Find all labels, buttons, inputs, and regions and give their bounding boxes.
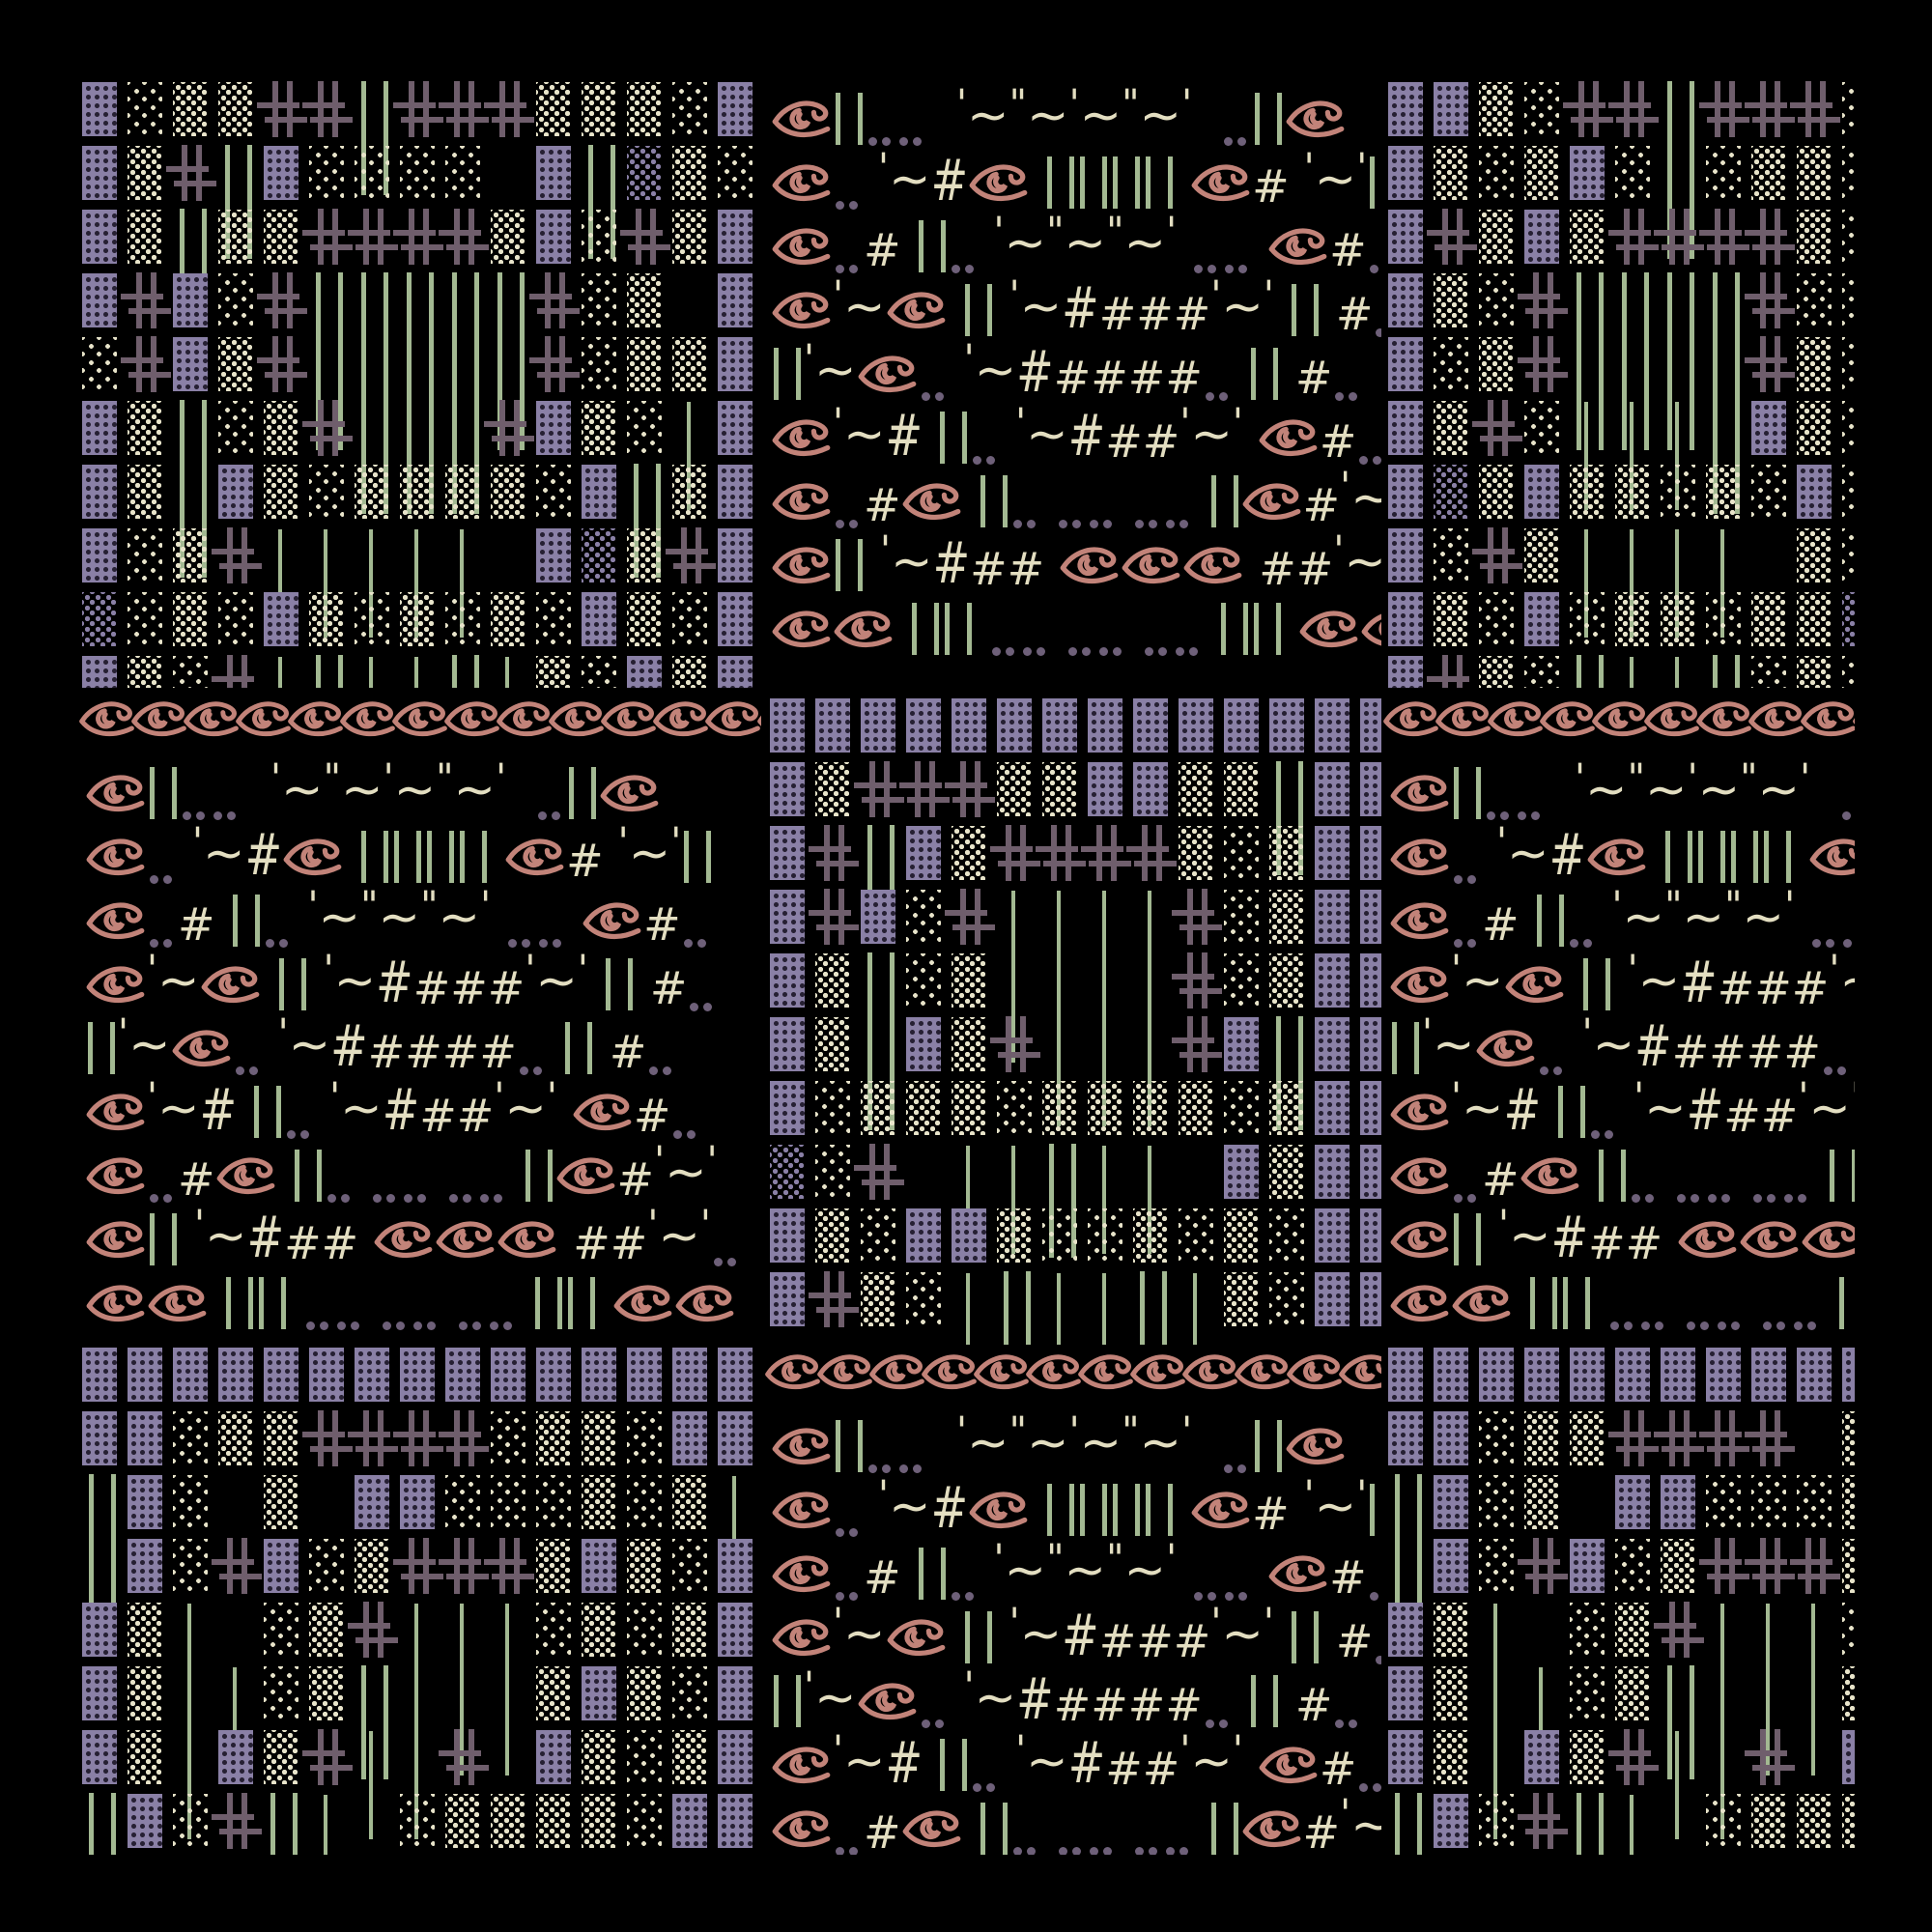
block-cell xyxy=(440,587,486,651)
dot-pair xyxy=(150,874,175,884)
block-cell xyxy=(259,524,304,587)
block-cell xyxy=(947,1140,992,1204)
dense-dot-block xyxy=(1570,1730,1605,1784)
block-cell xyxy=(486,1470,531,1534)
block-cell xyxy=(259,269,304,332)
sparse-dot-block xyxy=(218,273,253,327)
eye-icon xyxy=(572,1092,634,1142)
solid-purple-block xyxy=(264,592,298,646)
sparse-dot-block xyxy=(1706,146,1741,200)
block-cell xyxy=(77,1662,123,1725)
dot-pair xyxy=(459,1321,484,1330)
double-bar-icon xyxy=(1146,1484,1173,1536)
block-cell xyxy=(1565,651,1610,688)
block-cell xyxy=(1792,1725,1837,1789)
dense-dot-block xyxy=(582,82,616,136)
tick-glyph: ' xyxy=(804,1667,814,1706)
block-row xyxy=(1383,460,1855,524)
block-cell xyxy=(1610,1470,1656,1534)
dense-dot-block xyxy=(491,465,526,519)
block-cell xyxy=(1520,1406,1565,1470)
block-cell xyxy=(622,651,668,688)
block-cell xyxy=(1792,332,1837,396)
block-cell xyxy=(1701,651,1747,688)
block-cell xyxy=(304,1534,350,1598)
cross-icon xyxy=(1611,1729,1655,1785)
dot-pair xyxy=(1225,1591,1250,1601)
block-cell xyxy=(350,332,395,396)
tick-glyph: ' xyxy=(1612,887,1623,925)
block-cell xyxy=(168,332,213,396)
block-cell xyxy=(1128,1267,1174,1331)
sparse-dot-block xyxy=(815,1145,850,1199)
block-cell xyxy=(713,1470,758,1534)
block-row xyxy=(765,1076,1381,1140)
block-cell xyxy=(350,269,395,332)
dot-pair xyxy=(183,810,208,820)
block-cell xyxy=(1429,1789,1474,1853)
sparse-dot-block xyxy=(445,1475,480,1529)
cross-icon xyxy=(305,81,349,137)
cross-icon xyxy=(396,1410,440,1466)
solid-purple-block xyxy=(627,656,662,688)
dense-dot-block xyxy=(445,465,480,519)
block-cell xyxy=(440,651,486,688)
eye-icon xyxy=(1475,1028,1537,1078)
double-bar-icon xyxy=(1395,1793,1422,1855)
block-cell xyxy=(1429,1534,1474,1598)
block-cell xyxy=(947,821,992,885)
eye-icon xyxy=(886,290,948,340)
eye-row: '~'~###### xyxy=(79,1014,761,1078)
sparse-dot-block xyxy=(1842,82,1855,136)
tick-glyph: ' xyxy=(804,340,814,379)
tick-glyph: ' xyxy=(1179,1731,1190,1770)
eye-icon xyxy=(1853,697,1855,744)
dot-pair xyxy=(327,1193,353,1203)
hash-glyph: # xyxy=(1709,1030,1747,1074)
cross-icon xyxy=(1430,655,1473,688)
block-cell xyxy=(1565,1725,1610,1789)
sparse-dot-block xyxy=(1524,656,1559,688)
block-cell xyxy=(1383,1789,1429,1853)
block-cell xyxy=(1792,269,1837,332)
block-cell xyxy=(622,205,668,269)
solid-purple-block xyxy=(355,1348,389,1402)
single-bar-icon xyxy=(966,1273,970,1345)
block-cell xyxy=(1219,821,1264,885)
hash-glyph: # xyxy=(1761,1094,1799,1138)
block-cell xyxy=(622,524,668,587)
block-row xyxy=(77,1343,763,1406)
dense-dot-block xyxy=(1434,146,1468,200)
eye-row: '~'~####'~'# xyxy=(765,1604,1381,1667)
block-cell xyxy=(622,141,668,205)
cross-icon xyxy=(441,1729,485,1785)
eye-icon xyxy=(901,1808,963,1855)
dot-pair xyxy=(836,264,861,273)
sparse-dot-block xyxy=(1751,656,1786,688)
sparse-dot-block xyxy=(1797,1475,1832,1529)
block-cell xyxy=(1037,1012,1083,1076)
dot-pair xyxy=(1454,938,1479,948)
block-cell xyxy=(713,524,758,587)
tilde-glyph: ~ xyxy=(1350,473,1381,524)
block-cell xyxy=(713,651,758,688)
tilde-glyph: ~ xyxy=(843,410,886,460)
eye-icon xyxy=(1488,697,1540,744)
block-cell xyxy=(1565,205,1610,269)
spacer xyxy=(1484,1265,1498,1269)
sparse-dot-block xyxy=(400,1794,435,1848)
double-tick-glyph: " xyxy=(1628,759,1645,798)
block-cell xyxy=(1429,1406,1474,1470)
tick-glyph: ' xyxy=(496,759,506,798)
solid-purple-block xyxy=(1360,826,1381,880)
tilde-glyph: ~ xyxy=(1839,956,1855,1007)
eye-icon xyxy=(1389,1155,1451,1206)
eye-icon xyxy=(215,1155,277,1206)
solid-purple-block xyxy=(718,210,753,264)
hash-glyph: # xyxy=(1054,355,1092,400)
block-cell xyxy=(1174,1140,1219,1204)
block-cell xyxy=(1219,949,1264,1012)
block-cell xyxy=(713,460,758,524)
spacer xyxy=(441,1329,456,1333)
dot-pair xyxy=(1824,1065,1849,1075)
purple-dot-block xyxy=(770,1145,805,1199)
block-cell xyxy=(1747,332,1792,396)
dot-pair xyxy=(1090,1846,1115,1855)
block-cell xyxy=(77,1343,123,1406)
hash-glyph: # xyxy=(1165,355,1203,400)
eye-icon xyxy=(504,837,566,887)
block-cell xyxy=(304,1343,350,1406)
block-cell xyxy=(1520,396,1565,460)
hash-glyph: # xyxy=(1336,292,1374,336)
tilde-glyph: ~ xyxy=(1190,1737,1233,1787)
block-cell xyxy=(765,1012,810,1076)
tilde-glyph: ~ xyxy=(1027,1418,1069,1468)
eye-border-row xyxy=(765,1349,1381,1399)
block-cell xyxy=(531,524,577,587)
sparse-dot-block xyxy=(1570,1603,1605,1657)
block-cell xyxy=(531,1343,577,1406)
block-cell xyxy=(947,694,992,757)
block-cell xyxy=(1701,1534,1747,1598)
cross-icon xyxy=(487,400,530,456)
block-cell xyxy=(486,1406,531,1470)
block-cell xyxy=(1837,332,1855,396)
block-cell xyxy=(77,332,123,396)
eye-row: '~##'~' xyxy=(765,149,1381,213)
block-cell xyxy=(856,1140,901,1204)
tilde-glyph: ~ xyxy=(205,1211,247,1262)
tick-glyph: ' xyxy=(1304,1476,1315,1515)
block-cell xyxy=(259,460,304,524)
block-cell xyxy=(1610,77,1656,141)
eye-icon xyxy=(771,99,833,149)
block-cell xyxy=(1264,1204,1310,1267)
block-cell xyxy=(901,1140,947,1204)
tick-glyph: ' xyxy=(1210,1604,1221,1642)
block-cell xyxy=(1174,757,1219,821)
block-cell xyxy=(1429,1725,1474,1789)
sparse-dot-block xyxy=(672,82,707,136)
block-cell xyxy=(1792,1662,1837,1725)
spacer xyxy=(1795,947,1809,951)
block-cell xyxy=(1429,77,1474,141)
solid-purple-block xyxy=(1524,1348,1559,1402)
block-cell xyxy=(1610,460,1656,524)
solid-purple-block xyxy=(1842,1730,1855,1784)
dense-dot-block xyxy=(1842,1539,1855,1593)
spacer xyxy=(598,1329,612,1333)
block-cell xyxy=(577,587,622,651)
eye-row: '~'~###### xyxy=(1383,1014,1855,1078)
solid-purple-block xyxy=(1360,1145,1381,1199)
double-bar-icon xyxy=(1454,767,1481,819)
block-cell xyxy=(486,460,531,524)
block-cell xyxy=(577,1470,622,1534)
block-cell xyxy=(1383,587,1429,651)
block-cell xyxy=(1474,1725,1520,1789)
dense-dot-block xyxy=(1434,592,1468,646)
dense-dot-block xyxy=(1706,465,1741,519)
block-cell xyxy=(992,885,1037,949)
dot-pair xyxy=(1059,519,1084,528)
block-cell xyxy=(1520,77,1565,141)
hash-glyph: # xyxy=(634,1094,671,1138)
block-cell xyxy=(1174,1204,1219,1267)
dense-dot-block xyxy=(1797,401,1832,455)
solid-purple-block xyxy=(1797,1348,1832,1402)
block-cell xyxy=(622,1725,668,1789)
double-bar-icon xyxy=(1255,93,1282,145)
cross-icon xyxy=(441,81,485,137)
double-tick-glyph: " xyxy=(436,759,453,798)
block-cell xyxy=(1474,332,1520,396)
tilde-glyph: ~ xyxy=(157,1084,200,1134)
eye-icon xyxy=(435,1219,497,1269)
spacer xyxy=(355,1202,370,1206)
tick-glyph: ' xyxy=(647,1206,658,1244)
block-row xyxy=(77,587,763,651)
solid-purple-block xyxy=(536,1348,571,1402)
block-cell xyxy=(1174,1267,1219,1331)
block-cell xyxy=(1355,885,1381,949)
block-tile xyxy=(1383,77,1855,688)
spacer xyxy=(1822,1329,1836,1333)
sparse-dot-block xyxy=(672,592,707,646)
spacer xyxy=(558,1265,573,1269)
solid-purple-block xyxy=(770,1017,805,1071)
block-cell xyxy=(304,1598,350,1662)
dense-dot-block xyxy=(309,592,344,646)
block-cell xyxy=(77,587,123,651)
block-cell xyxy=(947,757,992,821)
solid-purple-block xyxy=(906,1017,941,1071)
hash-glyph: # xyxy=(1252,164,1290,209)
double-bar-icon xyxy=(1254,603,1281,655)
tilde-glyph: ~ xyxy=(289,1020,331,1070)
block-cell xyxy=(213,141,259,205)
hash-glyph: # xyxy=(1136,1619,1174,1663)
block-cell xyxy=(350,587,395,651)
block-cell xyxy=(1383,205,1429,269)
eye-icon xyxy=(85,900,147,951)
spacer xyxy=(1281,1727,1295,1731)
block-cell xyxy=(440,1343,486,1406)
dense-dot-block xyxy=(309,1666,344,1720)
block-cell xyxy=(1520,1470,1565,1534)
solid-purple-block xyxy=(1388,146,1423,200)
block-cell xyxy=(1520,524,1565,587)
eye-icon xyxy=(1540,697,1592,744)
hash-glyph: # xyxy=(488,966,526,1010)
block-cell xyxy=(1565,460,1610,524)
block-cell xyxy=(77,1725,123,1789)
block-cell xyxy=(1429,269,1474,332)
block-cell xyxy=(486,1789,531,1853)
sparse-dot-block xyxy=(536,1603,571,1657)
block-cell xyxy=(1792,524,1837,587)
tick-glyph: ' xyxy=(147,951,157,989)
tilde-glyph: ~ xyxy=(504,1084,547,1134)
spacer xyxy=(1177,272,1191,276)
eye-icon xyxy=(373,1219,435,1269)
block-cell xyxy=(1174,949,1219,1012)
block-cell xyxy=(1520,1789,1565,1853)
block-row xyxy=(77,1406,763,1470)
eye-icon xyxy=(1130,1350,1182,1397)
eye-icon xyxy=(1677,1219,1739,1269)
eye-icon xyxy=(757,697,761,744)
sparse-dot-block xyxy=(128,592,162,646)
spacer xyxy=(1194,527,1208,531)
block-cell xyxy=(304,332,350,396)
block-cell xyxy=(1837,1534,1855,1598)
cross-icon xyxy=(1520,336,1564,392)
block-cell xyxy=(1429,460,1474,524)
cross-icon xyxy=(993,1016,1037,1072)
solid-purple-block xyxy=(1315,953,1350,1008)
block-tile xyxy=(1383,1343,1855,1855)
block-cell xyxy=(810,949,856,1012)
block-cell xyxy=(1565,396,1610,460)
block-cell xyxy=(259,1725,304,1789)
block-cell xyxy=(213,460,259,524)
single-bar-icon xyxy=(278,657,282,688)
solid-purple-block xyxy=(952,1208,986,1263)
block-cell xyxy=(1383,332,1429,396)
eye-icon xyxy=(653,697,705,744)
block-cell xyxy=(1792,651,1837,688)
tilde-glyph: ~ xyxy=(535,956,578,1007)
spacer xyxy=(950,1727,964,1731)
block-cell xyxy=(1474,651,1520,688)
block-cell xyxy=(486,1534,531,1598)
block-cell xyxy=(531,587,577,651)
block-cell xyxy=(440,1725,486,1789)
tall-hash-glyph: # xyxy=(1504,1081,1542,1138)
solid-purple-block xyxy=(1388,1730,1423,1784)
block-cell xyxy=(1701,205,1747,269)
dot-pair xyxy=(1023,646,1048,656)
dot-pair xyxy=(868,136,894,146)
hash-glyph: # xyxy=(1754,966,1792,1010)
dot-pair xyxy=(1135,519,1160,528)
tall-hash-glyph: # xyxy=(1068,1734,1106,1791)
tick-glyph: ' xyxy=(1798,1078,1808,1117)
block-cell xyxy=(1792,396,1837,460)
block-cell xyxy=(1792,1406,1837,1470)
block-cell xyxy=(765,885,810,949)
double-bar-icon xyxy=(1251,1675,1278,1727)
tall-hash-glyph: # xyxy=(886,407,923,464)
tick-glyph: ' xyxy=(1181,85,1192,124)
tilde-glyph: ~ xyxy=(843,1737,886,1787)
dot-pair xyxy=(1843,938,1855,948)
solid-purple-block xyxy=(218,1730,253,1784)
block-cell xyxy=(213,396,259,460)
spacer xyxy=(344,883,358,887)
dot-pair xyxy=(404,1193,429,1203)
eye-row: '~"~'~"~' xyxy=(765,1412,1381,1476)
tick-glyph: ' xyxy=(278,1014,289,1053)
block-cell xyxy=(1128,1076,1174,1140)
block-cell xyxy=(1037,885,1083,949)
block-cell xyxy=(168,141,213,205)
block-cell xyxy=(1429,1470,1474,1534)
block-cell xyxy=(992,694,1037,757)
spacer xyxy=(1812,1202,1827,1206)
block-cell xyxy=(1219,1267,1264,1331)
eye-icon xyxy=(771,1490,833,1540)
block-cell xyxy=(713,141,758,205)
dot-pair xyxy=(1842,810,1855,820)
block-cell xyxy=(1747,1470,1792,1534)
eye-icon xyxy=(705,697,757,744)
hash-glyph: # xyxy=(1783,1030,1821,1074)
double-bar-icon xyxy=(565,1022,592,1074)
block-cell xyxy=(1656,1789,1701,1853)
tilde-glyph: ~ xyxy=(891,537,933,587)
solid-purple-block xyxy=(718,1794,753,1848)
spacer xyxy=(1541,1138,1555,1142)
dense-dot-block xyxy=(536,1794,571,1848)
tick-glyph: ' xyxy=(833,1604,843,1642)
block-cell xyxy=(668,269,713,332)
block-cell xyxy=(395,1470,440,1534)
block-cell xyxy=(395,524,440,587)
block-cell xyxy=(901,949,947,1012)
block-cell xyxy=(213,1662,259,1725)
spacer xyxy=(1207,1472,1221,1476)
hash-glyph: # xyxy=(1295,355,1333,400)
block-cell xyxy=(1128,1012,1174,1076)
tilde-glyph: ~ xyxy=(1026,1737,1068,1787)
block-cell xyxy=(947,1012,992,1076)
block-cell xyxy=(1701,1725,1747,1789)
double-bar-icon xyxy=(1370,1484,1381,1536)
solid-purple-block xyxy=(1360,953,1381,1008)
block-cell xyxy=(77,460,123,524)
solid-purple-block xyxy=(264,1539,298,1593)
block-cell xyxy=(213,332,259,396)
tall-hash-glyph: # xyxy=(247,1208,285,1265)
solid-purple-block xyxy=(1797,465,1832,519)
